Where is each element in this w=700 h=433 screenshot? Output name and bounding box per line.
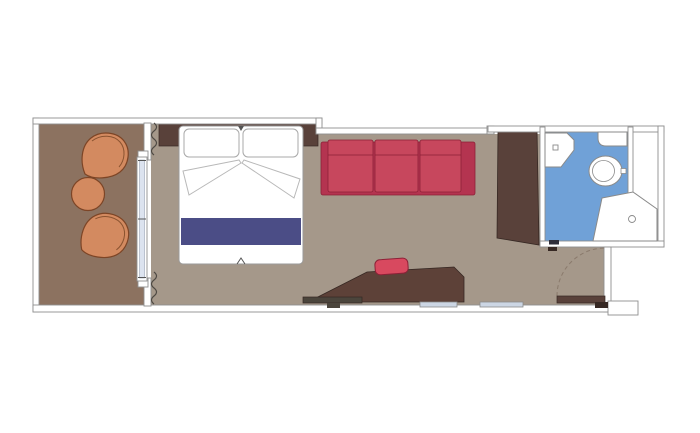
sofa-cushion-3 — [420, 140, 461, 192]
entry-door-leaf — [557, 296, 605, 303]
bathroom-shelf — [598, 132, 627, 146]
toilet-flush-button — [621, 169, 626, 174]
wall-top-bathroom — [488, 126, 664, 132]
shower — [593, 192, 657, 241]
floor-plan — [0, 0, 700, 433]
wall-left — [33, 118, 39, 312]
balcony-side-table — [72, 178, 105, 211]
wall-top-balcony-bed — [33, 118, 322, 124]
wall-bathroom-left — [540, 127, 545, 241]
sofa-cushion-1 — [328, 140, 373, 192]
bench-top — [303, 297, 362, 303]
balcony-armchair-top — [82, 133, 128, 178]
mirror-left — [420, 302, 457, 307]
wall-right — [658, 126, 664, 247]
sofa-cushion-2 — [375, 140, 418, 192]
wall-top-sofa — [316, 128, 494, 134]
bench-leg — [327, 303, 340, 308]
bed-runner — [181, 218, 301, 245]
sliding-glass-door — [137, 157, 147, 281]
mirror-right — [480, 302, 523, 307]
stool — [375, 258, 409, 275]
entry-door-threshold — [595, 302, 608, 308]
wall-entry-notch — [608, 301, 638, 315]
wardrobe — [497, 129, 539, 245]
floor-plan-drawing — [0, 0, 700, 433]
shower-tray — [593, 192, 657, 241]
bathroom-door-mark-upper — [549, 240, 559, 245]
armchair-body — [82, 133, 128, 178]
wall-bathroom-right — [628, 127, 633, 201]
sofa — [321, 140, 475, 195]
double-bed — [179, 126, 303, 264]
bathroom-door-mark-lower — [548, 247, 557, 251]
pillow-left — [184, 129, 239, 157]
wall-bottom — [33, 305, 611, 312]
pillow-right — [243, 129, 298, 157]
